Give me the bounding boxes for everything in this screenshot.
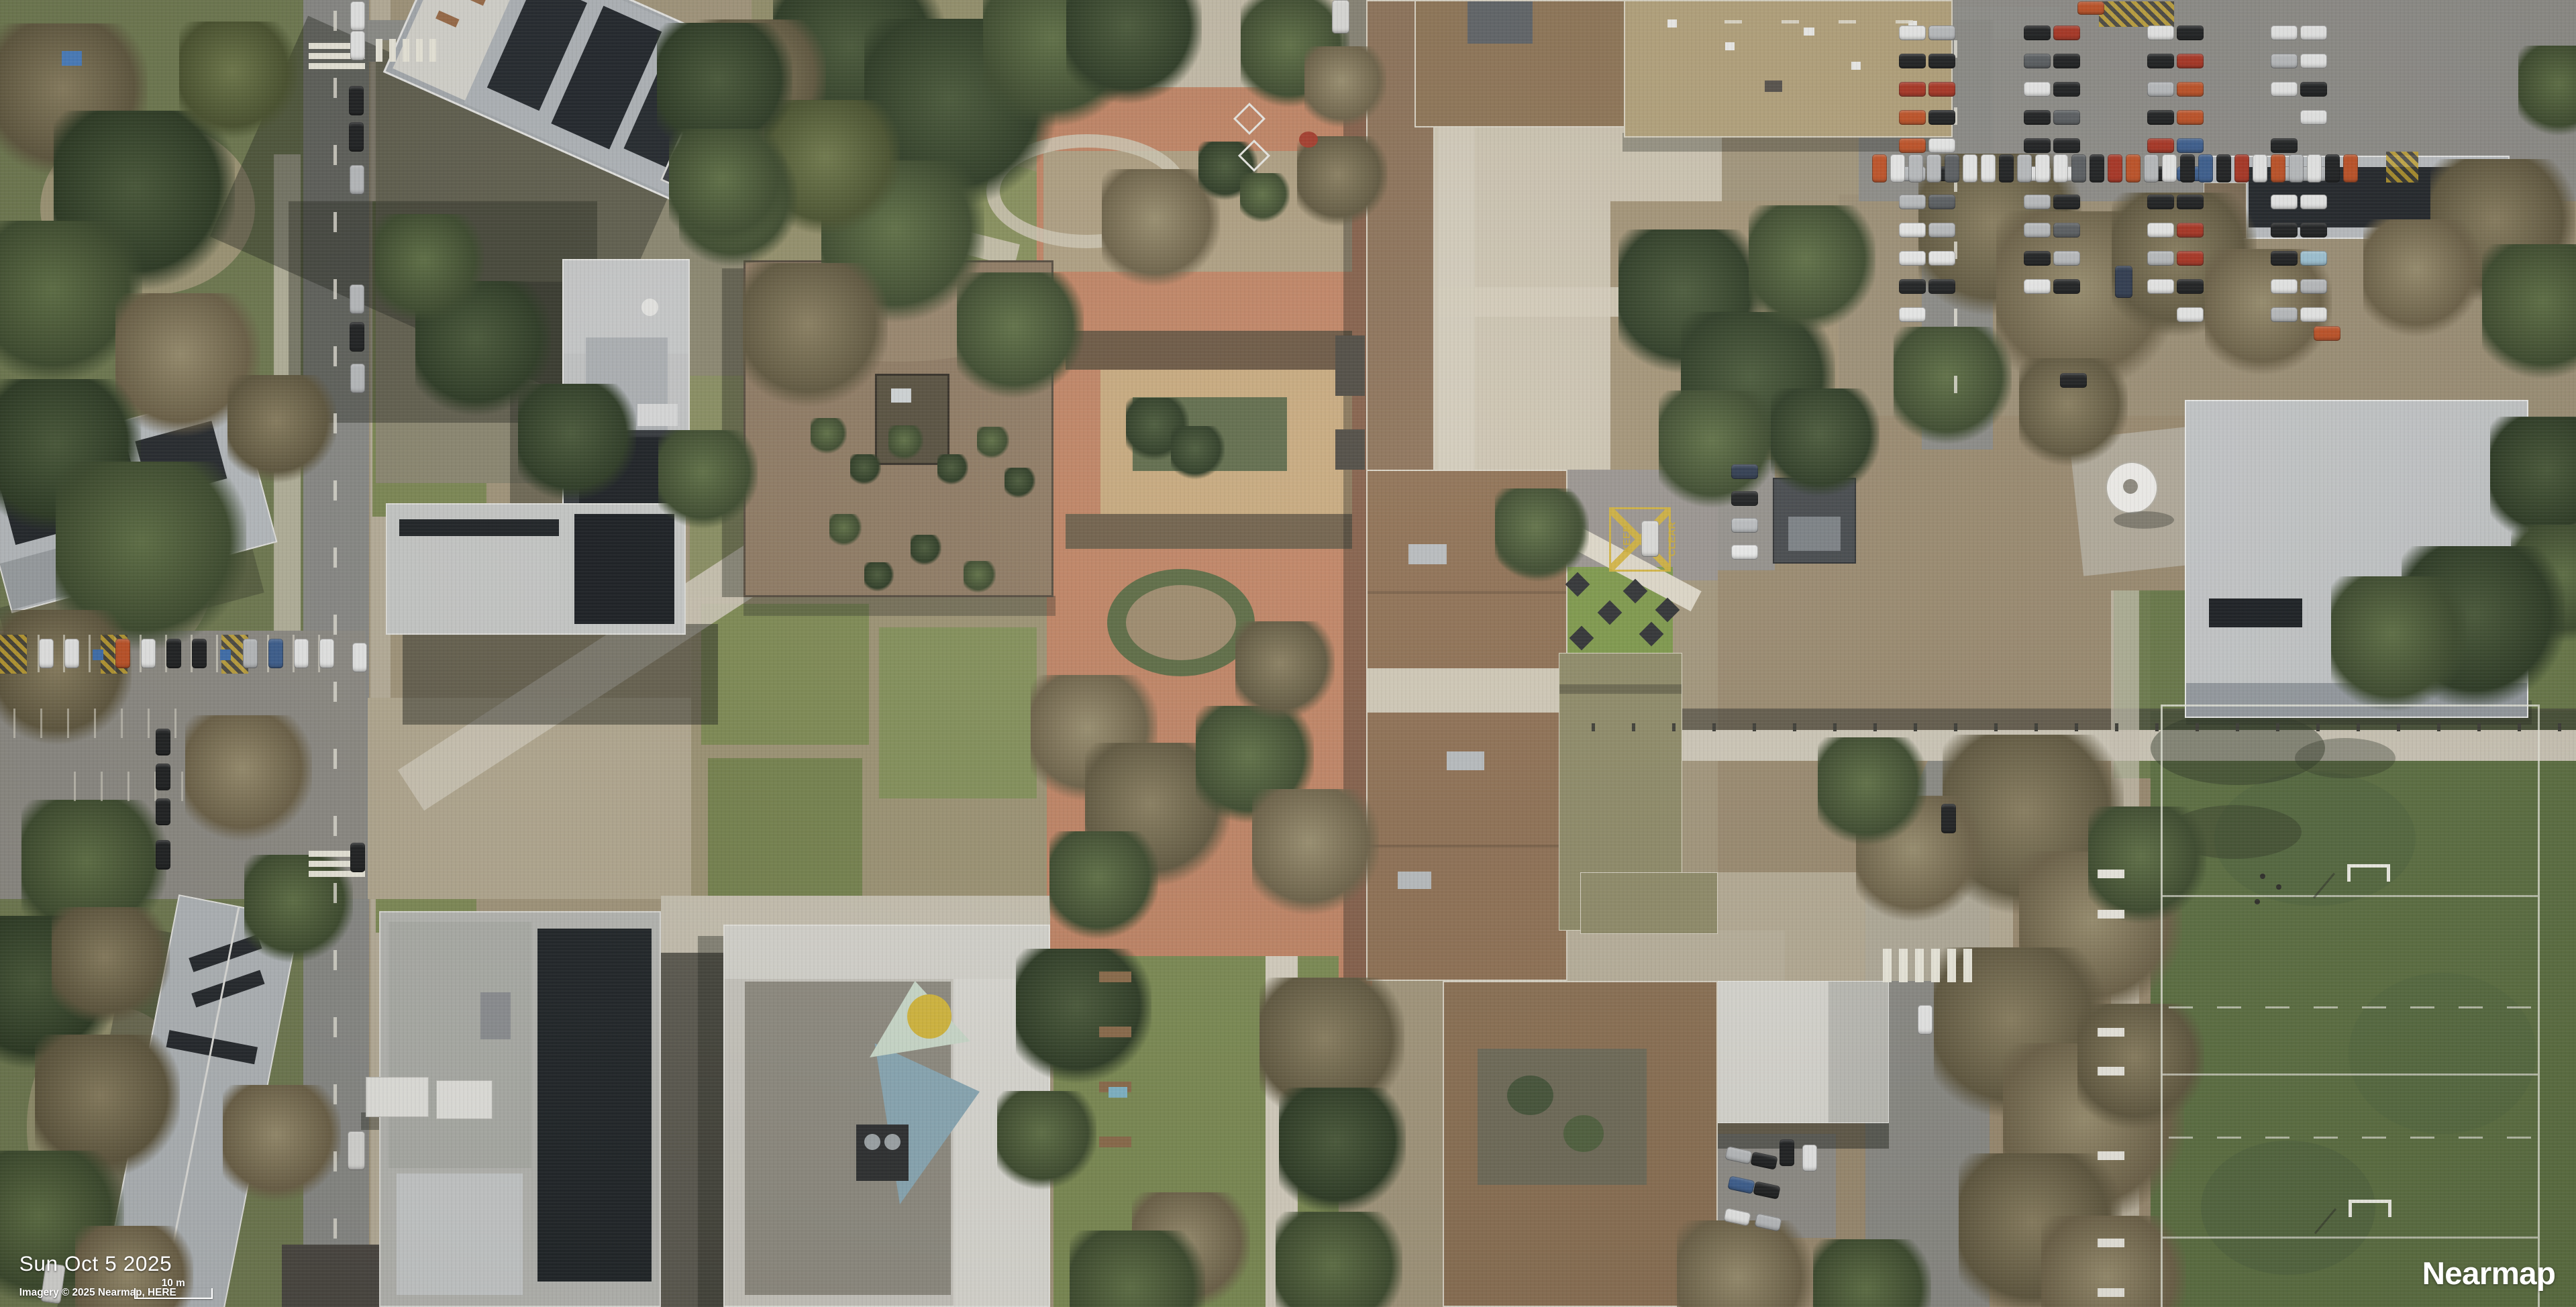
parking-bay-line — [101, 772, 103, 801]
road-centerline-dash — [333, 11, 337, 31]
parking-bay-line — [148, 709, 150, 738]
road-centerline-dash — [333, 212, 337, 232]
goal-post — [2387, 864, 2390, 882]
tree — [1276, 1212, 1402, 1307]
road-centerline-dash — [333, 749, 337, 769]
zebra-crossing-e — [1963, 949, 1972, 982]
parked-car — [2024, 25, 2051, 40]
parked-car — [1899, 195, 1926, 209]
bldg-solar-fins — [386, 503, 686, 635]
field-dash — [2314, 1137, 2338, 1139]
road-marking-text: CLEAR — [1667, 522, 1677, 557]
parked-car — [2053, 25, 2080, 40]
walkway-post — [2397, 723, 2400, 731]
parked-car — [2271, 223, 2298, 238]
roof-unit-1 — [1408, 544, 1447, 564]
parked-car — [64, 639, 79, 668]
walkway-post — [2276, 723, 2279, 731]
zebra-crossing-drive — [403, 39, 409, 62]
tree — [911, 535, 941, 566]
tree — [1297, 136, 1388, 227]
tree — [0, 610, 132, 746]
parked-car — [115, 639, 130, 668]
parked-car — [1731, 545, 1758, 560]
tree — [1016, 949, 1152, 1085]
field-dash — [2459, 1137, 2483, 1139]
field-line-2 — [2162, 895, 2538, 897]
parked-car — [352, 643, 367, 672]
parked-car — [2177, 279, 2204, 294]
bldg-olive-se — [1580, 872, 1718, 934]
road-ne-h-dash — [1839, 20, 1856, 23]
parked-car — [350, 31, 365, 60]
blue-object — [1109, 1087, 1127, 1098]
parked-car — [349, 86, 364, 115]
tree — [2363, 219, 2481, 337]
parked-car — [1928, 138, 1955, 153]
tree — [669, 129, 786, 247]
tree — [811, 418, 847, 454]
parked-car — [2177, 110, 2204, 125]
road-centerline-dash — [333, 883, 337, 903]
parked-car — [1928, 82, 1955, 97]
zebra-crossing-e — [1947, 949, 1956, 982]
right-section — [1828, 982, 1888, 1122]
parked-car — [2271, 251, 2298, 266]
tree — [1049, 831, 1158, 940]
se-plaza — [1557, 931, 1785, 983]
pale-band — [1368, 668, 1566, 713]
satellite-dish-center — [2123, 479, 2138, 494]
parked-car — [2300, 223, 2327, 238]
parked-car — [2147, 195, 2174, 209]
shadow-field-trees-1 — [2151, 711, 2325, 785]
parked-car — [192, 639, 207, 668]
walkway-post — [1954, 723, 1957, 731]
stripe — [1559, 684, 1682, 694]
parking-bay-line — [174, 709, 176, 738]
parked-car — [2180, 154, 2195, 182]
parked-car — [2216, 154, 2231, 182]
shadow-k-south — [1713, 1122, 1889, 1149]
parked-car — [2053, 223, 2080, 238]
parked-car — [2300, 195, 2327, 209]
lawn-q2 — [879, 627, 1037, 798]
disabled-bay — [220, 649, 231, 660]
picnic-table — [1099, 972, 1131, 982]
picnic-table — [1099, 1137, 1131, 1147]
walkway-post — [2075, 723, 2078, 731]
parked-car — [1731, 464, 1758, 479]
zebra-crossing-e — [1931, 949, 1940, 982]
tree — [1070, 1231, 1206, 1307]
zebra-crossing-e — [1883, 949, 1892, 982]
parked-car — [294, 639, 309, 668]
ac-units — [637, 404, 678, 427]
tree — [52, 907, 169, 1025]
parked-car — [2053, 279, 2080, 294]
field-dash — [2362, 1137, 2386, 1139]
field-dash — [2410, 1006, 2434, 1008]
parked-car — [2177, 307, 2204, 322]
parked-car — [350, 165, 364, 195]
parked-car — [2300, 82, 2327, 97]
parked-car — [2271, 279, 2298, 294]
tree — [2331, 576, 2467, 713]
road-centerline-dash — [333, 1084, 337, 1104]
fin-row — [399, 519, 559, 536]
field-line-3 — [2162, 1074, 2538, 1076]
tree — [2077, 1004, 2204, 1131]
parked-car — [348, 1131, 365, 1170]
roof-strip-top — [725, 926, 1049, 979]
tree — [743, 263, 888, 408]
parked-car — [350, 364, 365, 393]
parking-hatch — [0, 635, 27, 674]
parked-car — [2307, 154, 2322, 182]
tree — [1659, 390, 1776, 509]
tree — [997, 1091, 1097, 1191]
solar-top-2 — [191, 970, 264, 1008]
parked-car — [1641, 521, 1659, 557]
walkway-post — [1753, 723, 1756, 731]
tree — [964, 561, 996, 594]
parked-car — [2271, 25, 2298, 40]
bench-field — [2098, 870, 2124, 878]
parked-car — [2024, 251, 2051, 266]
field-dash — [2314, 1006, 2338, 1008]
parking-bay-line — [216, 635, 218, 672]
roof-nw — [389, 922, 531, 1168]
parked-car — [1899, 251, 1926, 266]
tree — [1749, 205, 1875, 332]
tree — [1004, 468, 1035, 499]
person-dot — [2276, 884, 2281, 890]
skylight — [891, 388, 911, 403]
parked-car — [2271, 154, 2285, 182]
parked-car — [1918, 1005, 1933, 1035]
road-centerline-dash — [333, 1017, 337, 1037]
keep-clear-box — [1609, 507, 1671, 572]
walkway-post — [2236, 723, 2239, 731]
parked-car — [2024, 54, 2051, 68]
court-tree-2 — [1563, 1115, 1603, 1152]
walkway-post — [2558, 723, 2561, 731]
person-dot — [2255, 899, 2260, 904]
annex-gray — [1467, 1, 1533, 44]
tent-1 — [366, 1077, 429, 1117]
field-dash — [2217, 1006, 2241, 1008]
parked-car — [1780, 1139, 1794, 1166]
parked-car — [1899, 223, 1926, 238]
walkway-post — [2196, 723, 2199, 731]
parked-car — [2017, 154, 2032, 182]
parked-car — [2024, 223, 2051, 238]
road-ne-h-dash — [1724, 20, 1742, 23]
parking-bay-line — [89, 635, 91, 672]
zebra-crossing-drive — [376, 39, 382, 62]
tree — [2482, 244, 2576, 380]
disabled-bay — [93, 649, 103, 660]
parked-car — [350, 1, 365, 31]
road-centerline-dash — [333, 547, 337, 568]
parked-car — [1928, 251, 1955, 266]
field-dash — [2169, 1006, 2193, 1008]
parked-car — [2024, 110, 2051, 125]
goal-post — [2347, 864, 2351, 882]
roof-unit-2 — [1447, 751, 1484, 770]
plant-fan-1 — [864, 1134, 880, 1150]
ac-1 — [1667, 19, 1677, 28]
parked-car — [39, 639, 54, 668]
goal-post — [2349, 1200, 2352, 1217]
tree — [185, 715, 312, 842]
field-line-top — [2162, 704, 2538, 707]
tree — [2518, 46, 2576, 136]
parked-car — [1899, 25, 1926, 40]
goal-crossbar — [2349, 1200, 2391, 1203]
parked-car — [2053, 110, 2080, 125]
parking-hatch — [2386, 152, 2418, 182]
bench-field — [2098, 1151, 2124, 1160]
shadow-field-trees-3 — [2295, 738, 2395, 778]
parking-bay-line — [40, 709, 42, 738]
parked-car — [1999, 154, 2014, 182]
tree — [977, 427, 1010, 460]
road-centerline-dash — [333, 413, 337, 433]
parking-bay-line — [67, 709, 69, 738]
aerial-map-canvas[interactable]: Sun Oct 5 2025 Imagery © 2025 Nearmap, H… — [0, 0, 2576, 1307]
court — [1478, 1049, 1647, 1185]
tree — [1066, 0, 1202, 105]
parked-car — [2198, 154, 2213, 182]
scale-bar: 10 m — [134, 1288, 213, 1299]
ridge-1 — [1368, 591, 1566, 594]
parking-bay-line — [94, 709, 96, 738]
parked-car — [350, 843, 365, 872]
tree — [888, 425, 923, 460]
road-centerline-dash — [333, 682, 337, 702]
zebra-crossing-drive — [429, 39, 436, 62]
parked-car — [156, 840, 170, 870]
road-ne-h-dash — [1896, 20, 1913, 23]
bench-field — [2098, 1239, 2124, 1247]
walkway-post — [2477, 723, 2481, 731]
parked-car — [2300, 251, 2327, 266]
parked-car — [2147, 110, 2174, 125]
parked-car — [1731, 518, 1758, 533]
tree — [658, 430, 758, 530]
parked-car — [2177, 54, 2204, 68]
parked-car — [2053, 54, 2080, 68]
road-centerline-dash — [333, 950, 337, 970]
road-centerline-dash — [333, 346, 337, 366]
parked-car — [2077, 1, 2104, 15]
parked-car — [2300, 25, 2327, 40]
parked-car — [2271, 195, 2298, 209]
tree — [1279, 1088, 1406, 1214]
scale-label: 10 m — [136, 1277, 211, 1290]
tree — [829, 514, 862, 547]
capture-date-label: Sun Oct 5 2025 — [19, 1252, 172, 1276]
parked-car — [1928, 25, 1955, 40]
parked-car — [2271, 54, 2298, 68]
parked-car — [2177, 223, 2204, 238]
parked-car — [349, 122, 364, 152]
plant-pad-dark — [856, 1125, 909, 1181]
parked-car — [2053, 251, 2080, 266]
walkway-post — [1712, 723, 1716, 731]
bench-field — [2098, 910, 2124, 919]
parked-car — [2177, 25, 2204, 40]
field-dash — [2169, 1137, 2193, 1139]
parked-car — [2053, 154, 2068, 182]
bench-field — [2098, 1288, 2124, 1297]
parked-car — [2234, 154, 2249, 182]
walkway-post — [1793, 723, 1796, 731]
parked-car — [156, 729, 170, 755]
sphere-yellow — [907, 994, 951, 1039]
walkway-post — [1632, 723, 1635, 731]
parked-car — [1928, 54, 1955, 68]
zebra-crossing-e — [1915, 949, 1924, 982]
road-centerline-dash — [333, 480, 337, 501]
blue-tarp — [62, 51, 82, 66]
parked-car — [2271, 138, 2298, 153]
tree — [223, 1085, 340, 1203]
parked-car — [141, 639, 156, 668]
red-flowerbed — [1299, 132, 1318, 148]
walkway-post — [1672, 723, 1676, 731]
parked-car — [2071, 154, 2086, 182]
parked-car — [2035, 154, 2050, 182]
picnic-table — [1099, 1027, 1131, 1037]
solar-right — [574, 514, 674, 625]
bldg-ne-hip — [1414, 0, 1653, 127]
walkway-post — [2437, 723, 2440, 731]
parked-car — [2177, 251, 2204, 266]
tree — [227, 375, 336, 484]
vent — [480, 992, 511, 1039]
parked-car — [156, 764, 170, 790]
quad-roof-band-2 — [1066, 514, 1352, 549]
tent-2 — [436, 1080, 493, 1119]
parked-car — [1890, 154, 1905, 182]
roof-unit-3 — [1398, 872, 1431, 889]
lawn-q1 — [701, 604, 869, 745]
satellite-dish-shadow — [2114, 511, 2174, 529]
tree — [937, 454, 968, 485]
parked-car — [2314, 326, 2340, 341]
zebra-crossing-drive — [389, 39, 396, 62]
parked-car — [2177, 138, 2204, 153]
tree — [864, 562, 893, 591]
parked-car — [2147, 279, 2174, 294]
parked-car — [1941, 804, 1956, 833]
shadow-bldg-d — [403, 624, 718, 725]
tree — [2490, 417, 2576, 543]
tree — [1813, 1239, 1930, 1307]
parked-car — [156, 798, 170, 825]
ridge-2 — [1368, 845, 1566, 847]
tree — [1240, 173, 1290, 223]
parked-car — [2177, 195, 2204, 209]
road-centerline-dash — [333, 279, 337, 299]
roof-corrugated — [397, 1173, 523, 1295]
field-line-left — [2161, 704, 2163, 1307]
parking-bay-line — [121, 709, 123, 738]
parked-car — [2300, 54, 2327, 68]
solar-main — [537, 929, 652, 1282]
ac-4 — [1851, 62, 1861, 70]
parked-car — [2053, 138, 2080, 153]
walkway-post — [2316, 723, 2320, 731]
parked-car — [2300, 307, 2327, 322]
parked-car — [2147, 82, 2174, 97]
walkway-post — [1914, 723, 1917, 731]
parked-car — [1899, 110, 1926, 125]
tree — [179, 21, 297, 140]
tree — [1894, 327, 2011, 445]
walkway-post — [2518, 723, 2521, 731]
parked-car — [1928, 223, 1955, 238]
parked-car — [2325, 154, 2340, 182]
tree — [1171, 426, 1225, 480]
field-dash — [2217, 1137, 2241, 1139]
zebra-crossing-nw — [309, 63, 365, 69]
parked-car — [1332, 0, 1349, 34]
parked-car — [1899, 307, 1926, 322]
parked-car — [243, 639, 258, 668]
goal-crossbar — [2347, 864, 2390, 868]
parked-car — [1926, 154, 1941, 182]
canopy-dark — [1335, 429, 1365, 470]
field-dash — [2265, 1006, 2289, 1008]
bench-field — [2098, 1028, 2124, 1037]
parked-car — [268, 639, 283, 668]
tree — [1771, 388, 1879, 497]
walkway-post — [1592, 723, 1595, 731]
parked-car — [1945, 154, 1959, 182]
parked-car — [2053, 82, 2080, 97]
goal-post — [2388, 1200, 2391, 1217]
road-centerline-dash — [333, 145, 337, 165]
parked-car — [2147, 138, 2174, 153]
tree — [957, 272, 1084, 399]
parked-car — [2343, 154, 2358, 182]
parked-car — [2115, 266, 2132, 298]
field-dash — [2507, 1137, 2531, 1139]
field-dash — [2362, 1006, 2386, 1008]
road-ne-dash — [1954, 376, 1957, 393]
bench-field — [2098, 1067, 2124, 1076]
tree — [518, 384, 635, 502]
parked-car — [2147, 223, 2174, 238]
parked-car — [1872, 154, 1887, 182]
parked-car — [2024, 138, 2051, 153]
tree — [2088, 806, 2206, 925]
parked-car — [1731, 491, 1758, 506]
tree — [1304, 46, 1386, 128]
parked-car — [1899, 138, 1926, 153]
parked-car — [2177, 82, 2204, 97]
parked-car — [2024, 195, 2051, 209]
parked-car — [1899, 54, 1926, 68]
parked-car — [2090, 154, 2104, 182]
parked-car — [2024, 82, 2051, 97]
person-dot — [2260, 874, 2265, 879]
road-centerline-dash — [333, 1218, 337, 1239]
